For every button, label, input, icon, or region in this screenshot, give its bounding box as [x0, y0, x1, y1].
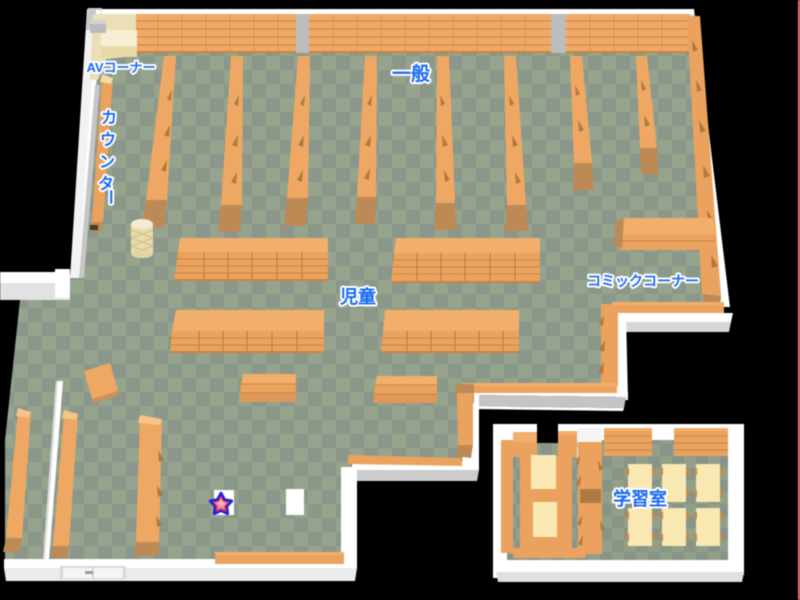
svg-text:児童: 児童 [339, 286, 376, 307]
svg-text:ウ: ウ [100, 131, 116, 149]
svg-text:AVコーナー: AVコーナー [86, 60, 155, 75]
svg-text:コミックコーナー: コミックコーナー [587, 273, 699, 289]
svg-text:一般: 一般 [392, 62, 430, 85]
svg-text:カ: カ [101, 109, 117, 127]
svg-text:学習室: 学習室 [613, 488, 667, 509]
svg-text:ー: ー [101, 189, 118, 205]
svg-text:ン: ン [99, 154, 115, 171]
